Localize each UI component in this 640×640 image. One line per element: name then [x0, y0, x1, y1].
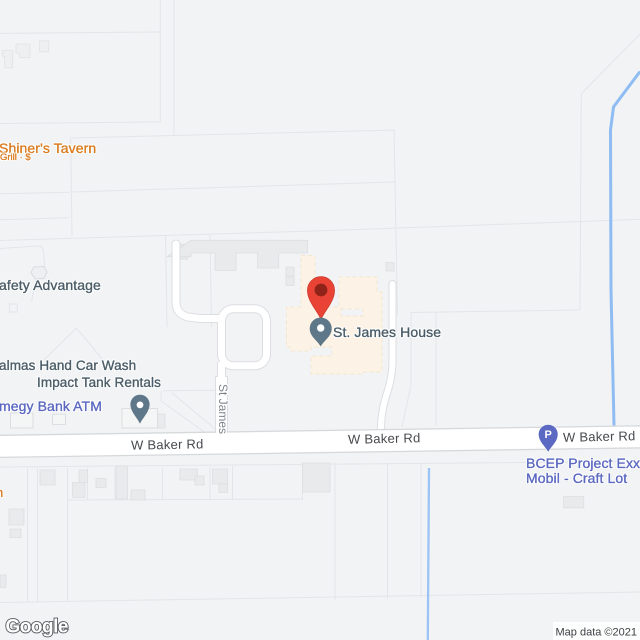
svg-text:Google: Google: [6, 617, 68, 638]
svg-text:Map data ©2021: Map data ©2021: [556, 627, 638, 639]
svg-text:P: P: [545, 429, 552, 441]
